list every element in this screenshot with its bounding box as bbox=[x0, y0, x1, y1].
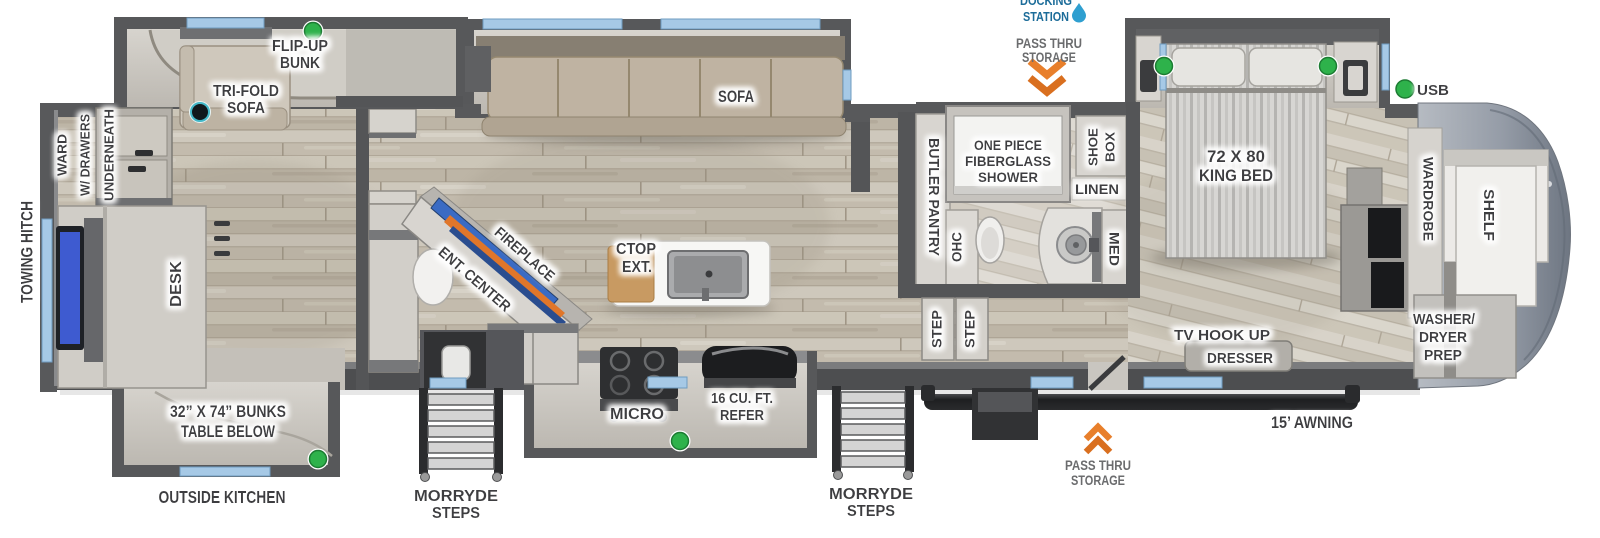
svg-text:SOFA: SOFA bbox=[718, 87, 754, 106]
svg-text:PREP: PREP bbox=[1424, 347, 1462, 364]
svg-text:CTOP: CTOP bbox=[616, 241, 656, 258]
svg-text:KING BED: KING BED bbox=[1199, 167, 1273, 185]
svg-text:SHOWER: SHOWER bbox=[978, 169, 1038, 185]
svg-text:DRESSER: DRESSER bbox=[1207, 350, 1273, 367]
svg-text:15’ AWNING: 15’ AWNING bbox=[1271, 414, 1353, 432]
svg-text:STORAGE: STORAGE bbox=[1022, 50, 1076, 65]
svg-text:72 X 80: 72 X 80 bbox=[1207, 148, 1265, 166]
svg-text:TRI-FOLD: TRI-FOLD bbox=[213, 83, 279, 100]
svg-text:MORRYDE: MORRYDE bbox=[414, 488, 498, 505]
svg-text:UNDERNEATH: UNDERNEATH bbox=[101, 109, 116, 201]
svg-text:BUTLER PANTRY: BUTLER PANTRY bbox=[925, 138, 941, 256]
svg-text:STATION: STATION bbox=[1023, 9, 1069, 24]
svg-text:WARDROBE: WARDROBE bbox=[1420, 157, 1435, 241]
svg-text:STEP: STEP bbox=[930, 310, 945, 348]
svg-text:STEPS: STEPS bbox=[847, 503, 895, 520]
svg-text:USB: USB bbox=[1417, 82, 1449, 99]
svg-text:PASS THRU: PASS THRU bbox=[1065, 458, 1131, 473]
svg-text:WASHER/: WASHER/ bbox=[1413, 311, 1476, 328]
svg-text:BOX: BOX bbox=[1102, 132, 1117, 162]
svg-text:SHOE: SHOE bbox=[1085, 128, 1100, 166]
svg-text:STEP: STEP bbox=[963, 310, 978, 348]
svg-text:DESK: DESK bbox=[168, 261, 185, 307]
svg-text:MED: MED bbox=[1106, 232, 1122, 266]
svg-text:MICRO: MICRO bbox=[610, 406, 664, 423]
svg-text:SOFA: SOFA bbox=[227, 100, 265, 117]
svg-text:OHC: OHC bbox=[949, 232, 965, 262]
svg-text:EXT.: EXT. bbox=[622, 259, 652, 276]
svg-text:FLIP-UP: FLIP-UP bbox=[272, 38, 328, 55]
svg-text:OUTSIDE KITCHEN: OUTSIDE KITCHEN bbox=[159, 487, 286, 507]
svg-text:STEPS: STEPS bbox=[432, 505, 480, 522]
svg-text:SHELF: SHELF bbox=[1480, 189, 1496, 241]
svg-text:TOWING HITCH: TOWING HITCH bbox=[17, 201, 36, 303]
svg-text:W/ DRAWERS: W/ DRAWERS bbox=[77, 114, 92, 196]
svg-text:TABLE BELOW: TABLE BELOW bbox=[181, 423, 275, 441]
svg-text:16 CU. FT.: 16 CU. FT. bbox=[711, 390, 773, 407]
svg-text:DRYER: DRYER bbox=[1419, 329, 1467, 346]
svg-text:LINEN: LINEN bbox=[1075, 181, 1119, 197]
svg-text:FIBERGLASS: FIBERGLASS bbox=[965, 153, 1051, 169]
svg-text:TV HOOK UP: TV HOOK UP bbox=[1174, 327, 1270, 344]
svg-text:REFER: REFER bbox=[720, 407, 764, 424]
svg-text:PASS THRU: PASS THRU bbox=[1016, 36, 1082, 51]
svg-text:WARD: WARD bbox=[54, 134, 69, 176]
svg-text:MORRYDE: MORRYDE bbox=[829, 486, 913, 503]
svg-text:ONE PIECE: ONE PIECE bbox=[974, 137, 1042, 153]
svg-text:STORAGE: STORAGE bbox=[1071, 473, 1125, 488]
svg-text:DOCKING: DOCKING bbox=[1020, 0, 1072, 8]
svg-text:32” X 74” BUNKS: 32” X 74” BUNKS bbox=[170, 403, 286, 421]
svg-text:BUNK: BUNK bbox=[280, 55, 320, 72]
